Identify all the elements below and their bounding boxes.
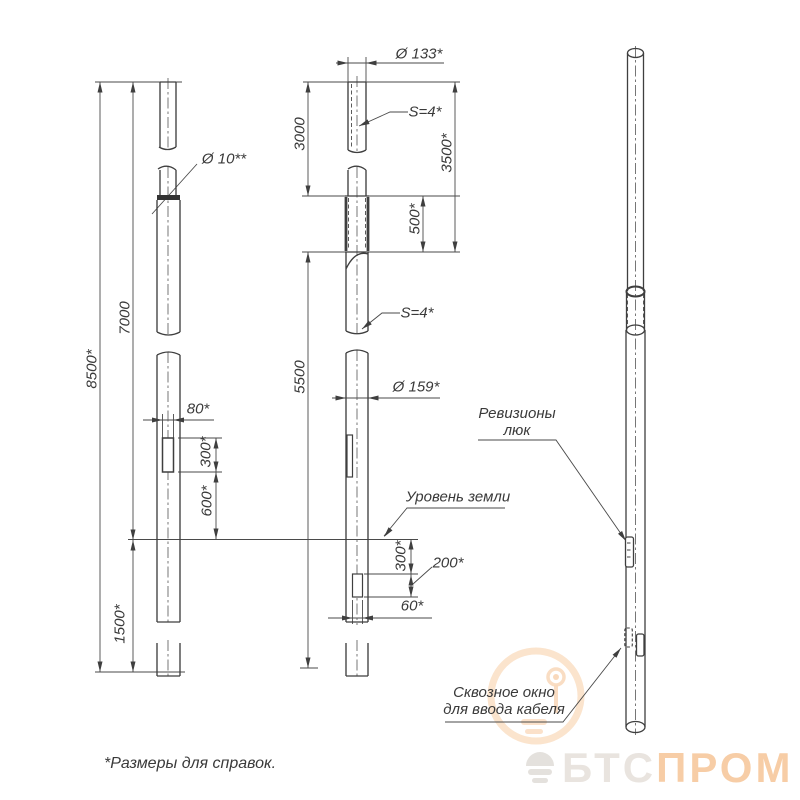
watermark-brand: БТСПРОМ xyxy=(562,744,793,792)
pole-front-view xyxy=(157,82,180,676)
arrowhead xyxy=(131,662,136,673)
arrowhead xyxy=(98,662,103,673)
revision-hatch-label: Ревизионы люк xyxy=(478,405,555,439)
dim-upper-section: 3000 xyxy=(292,117,309,150)
arrowhead xyxy=(382,527,392,538)
arrowhead xyxy=(421,242,426,253)
dim-above-ground: 7000 xyxy=(117,301,134,334)
drawing-canvas xyxy=(0,0,800,800)
arrowhead xyxy=(453,82,458,93)
revision-hatch-label-line1: Ревизионы xyxy=(478,405,555,422)
cable-window-section xyxy=(353,574,363,597)
arrowhead xyxy=(98,82,103,93)
ground-level-label: Уровень земли xyxy=(406,489,510,506)
dim-hatch-hole-width: 80* xyxy=(187,401,210,418)
footnote: *Размеры для справок. xyxy=(104,755,276,773)
arrowhead xyxy=(368,396,379,401)
arrowhead xyxy=(366,61,377,66)
revision-hatch-iso xyxy=(626,537,634,567)
hidden-lines xyxy=(349,84,644,328)
arrowhead xyxy=(174,418,185,423)
cable-window-label-line2: для ввода кабеля xyxy=(443,701,565,718)
dim-embedment: 1500* xyxy=(112,604,129,643)
cable-window-label-line1: Сквозное окно xyxy=(443,684,565,701)
cable-window-iso xyxy=(637,634,645,656)
revision-hatch-label-line2: люк xyxy=(478,422,555,439)
arrowhead xyxy=(306,186,311,197)
dim-hatch-elevation: 600* xyxy=(199,486,216,517)
arrowhead xyxy=(306,658,311,669)
joint-sleeve xyxy=(346,197,368,251)
technical-drawing: 8500* 7000 1500* 3000 5500 3500* 500* 30… xyxy=(0,0,800,800)
arrowhead xyxy=(131,530,136,541)
dim-total-height: 8500* xyxy=(84,349,101,388)
arrowhead xyxy=(131,540,136,551)
arrowhead xyxy=(409,587,414,598)
arrowhead xyxy=(306,252,311,263)
arrowhead xyxy=(358,119,370,128)
arrowhead xyxy=(336,396,347,401)
dim-window-width: 60* xyxy=(401,598,424,615)
arrowhead xyxy=(214,472,219,483)
revision-hatch-section xyxy=(347,435,353,477)
arrowhead xyxy=(342,616,353,621)
dim-window-depth: 300* xyxy=(393,541,410,572)
dim-wall-thickness-lower: S=4* xyxy=(401,305,434,322)
dim-lower-section: 5500 xyxy=(292,360,309,393)
bulb-icon xyxy=(526,752,554,783)
dim-hatch-height: 300* xyxy=(198,437,215,468)
watermark-brand-part1: БТС xyxy=(562,744,656,791)
cable-window-label: Сквозное окно для ввода кабеля xyxy=(443,684,565,718)
arrowhead xyxy=(131,82,136,93)
arrowhead xyxy=(453,242,458,253)
dim-top-diameter: Ø 133* xyxy=(396,46,443,63)
arrowhead xyxy=(338,61,349,66)
dim-bottom-diameter: Ø 159* xyxy=(393,379,440,396)
flange-joint xyxy=(157,195,180,200)
dim-joint-overlap: 500* xyxy=(407,204,424,235)
arrowhead xyxy=(409,575,414,586)
revision-hatch-front xyxy=(163,438,174,472)
dim-bolt-hole-diameter: Ø 10** xyxy=(202,151,246,168)
watermark-brand-part2: ПРОМ xyxy=(656,744,793,791)
dim-upper-pipe-total: 3500* xyxy=(439,133,456,172)
dim-wall-thickness-upper: S=4* xyxy=(409,104,442,121)
arrowhead xyxy=(214,529,219,540)
dim-window-height: 200* xyxy=(433,555,464,572)
pole-iso-view xyxy=(625,49,645,733)
arrowhead xyxy=(306,82,311,93)
